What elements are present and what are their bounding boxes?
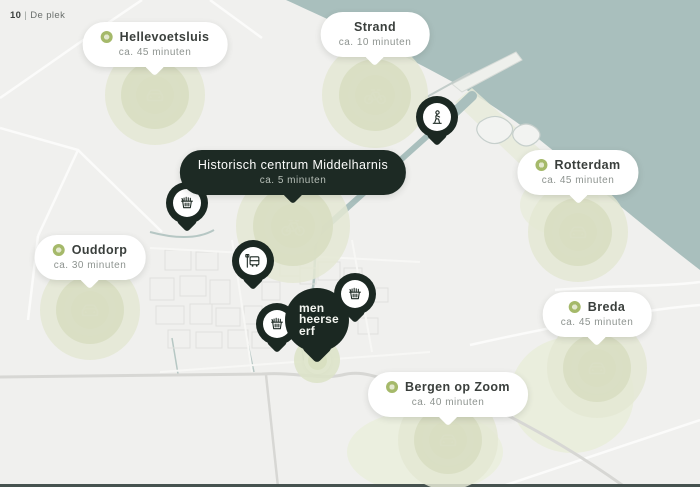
bus-stop-icon (243, 251, 263, 271)
location-dot-icon (569, 301, 581, 313)
tooltip-breda: Breda ca. 45 minuten (543, 292, 652, 337)
tooltip-historisch-centrum: Historisch centrum Middelharnis ca. 5 mi… (180, 150, 406, 195)
destination-title: Rotterdam (535, 158, 620, 172)
destination-time: ca. 45 minuten (101, 47, 210, 58)
tooltip-hellevoetsluis: Hellevoetsluis ca. 45 minuten (83, 22, 228, 67)
page-header: 10|De plek (10, 10, 65, 21)
destination-title: Hellevoetsluis (101, 30, 210, 44)
marker-halo (544, 198, 612, 266)
page-number: 10 (10, 10, 21, 21)
destination-title: Strand (339, 20, 412, 34)
destination-name: Breda (588, 300, 625, 314)
destination-time: ca. 30 minuten (53, 260, 128, 271)
destination-name: Rotterdam (554, 158, 620, 172)
location-dot-icon (535, 159, 547, 171)
person-statue-icon (427, 107, 447, 127)
tooltip-ouddorp: Ouddorp ca. 30 minuten (35, 235, 146, 280)
destination-name: Historisch centrum Middelharnis (198, 158, 388, 172)
pin-circle (341, 280, 369, 308)
map-page: 10|De plek (0, 0, 700, 487)
tooltip-strand: Strand ca. 10 minuten (321, 12, 430, 57)
pin-circle (423, 103, 451, 131)
pin-harbor-landmark (416, 96, 458, 138)
menheerse-erf-logo: men heerse erf (285, 303, 339, 337)
pin-circle (239, 247, 267, 275)
destination-title: Ouddorp (53, 243, 128, 257)
destination-time: ca. 10 minuten (339, 37, 412, 48)
destination-title: Breda (561, 300, 634, 314)
destination-name: Bergen op Zoom (405, 380, 510, 394)
location-dot-icon (386, 381, 398, 393)
menheerse-erf-pin: men heerse erf (285, 288, 349, 352)
pin-bus-stop (232, 240, 274, 282)
destination-title: Bergen op Zoom (386, 380, 510, 394)
section-title: De plek (30, 10, 65, 21)
destination-title: Historisch centrum Middelharnis (198, 158, 388, 172)
marker-halo (339, 59, 411, 131)
tooltip-rotterdam: Rotterdam ca. 45 minuten (517, 150, 638, 195)
tooltip-bergen-op-zoom: Bergen op Zoom ca. 40 minuten (368, 372, 528, 417)
destination-time: ca. 45 minuten (561, 317, 634, 328)
destination-time: ca. 5 minuten (198, 175, 388, 186)
location-dot-icon (53, 244, 65, 256)
grocery-basket-icon (267, 314, 287, 334)
grocery-basket-icon (345, 284, 365, 304)
location-dot-icon (101, 31, 113, 43)
destination-time: ca. 45 minuten (535, 175, 620, 186)
destination-time: ca. 40 minuten (386, 397, 510, 408)
destination-name: Hellevoetsluis (120, 30, 210, 44)
destination-name: Strand (354, 20, 396, 34)
page-separator: | (24, 10, 27, 21)
logo-line: erf (299, 326, 339, 337)
grocery-basket-icon (177, 193, 197, 213)
destination-name: Ouddorp (72, 243, 128, 257)
